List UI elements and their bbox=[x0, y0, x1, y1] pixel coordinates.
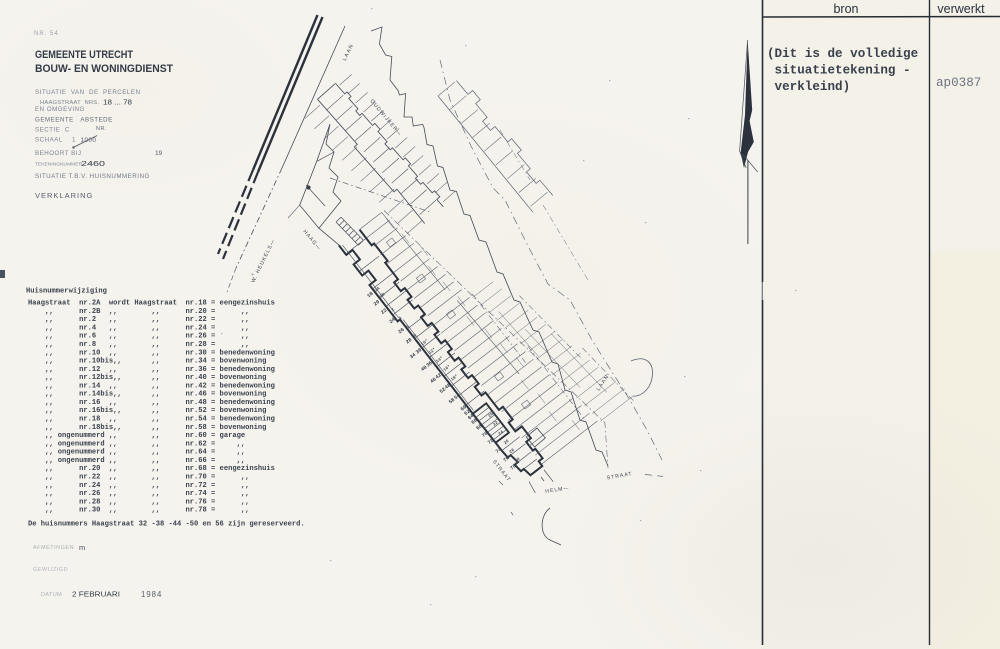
svg-text:1984: 1984 bbox=[141, 590, 162, 599]
svg-text:2 FEBRUARI: 2 FEBRUARI bbox=[72, 590, 120, 599]
svg-text:,, nr.2 ,, ,,: ,, nr.2 ,, ,, nr.22 = ,, bbox=[28, 316, 249, 324]
svg-text:,, ongenummerd ,, ,,: ,, ongenummerd ,, ,, nr.66 = ,, bbox=[28, 457, 245, 465]
svg-text:,, nr.30 ,, ,,: ,, nr.30 ,, ,, nr.78 = ,, bbox=[28, 507, 249, 515]
svg-text:GEMEENTE ABSTEDE: GEMEENTE ABSTEDE bbox=[35, 117, 113, 124]
svg-text:Haagstraat nr.2A wordt Haags: Haagstraat nr.2A wordt Haagstraat nr.18 … bbox=[28, 300, 275, 308]
svg-text:m: m bbox=[79, 543, 85, 552]
svg-text:,, nr.16 ,, ,,: ,, nr.16 ,, ,, nr.48 = benedenwoning bbox=[28, 399, 275, 407]
svg-text:verkleind): verkleind) bbox=[767, 80, 850, 94]
svg-text:SITUATIE T.B.V. HUISNUMMERING: SITUATIE T.B.V. HUISNUMMERING bbox=[35, 173, 150, 180]
svg-text:2460: 2460 bbox=[81, 159, 105, 168]
svg-text:,, nr.8 ,, ,,: ,, nr.8 ,, ,, nr.28 = ,, bbox=[28, 341, 249, 349]
svg-text:GEMEENTE UTRECHT: GEMEENTE UTRECHT bbox=[35, 49, 133, 61]
svg-text:,, ongenummerd ,, ,,: ,, ongenummerd ,, ,, nr.62 = ,, bbox=[28, 440, 245, 448]
svg-text:,, nr.2B ,, ,,: ,, nr.2B ,, ,, nr.20 = ,, bbox=[28, 308, 249, 316]
svg-text:BOUW- EN WONINGDIENST: BOUW- EN WONINGDIENST bbox=[35, 63, 173, 75]
svg-text:,, nr.10 ,, ,,: ,, nr.10 ,, ,, nr.30 = benedenwoning bbox=[28, 349, 275, 357]
svg-text:,, nr.12 ,, ,,: ,, nr.12 ,, ,, nr.36 = benedenwoning bbox=[28, 366, 275, 374]
svg-text:VERKLARING: VERKLARING bbox=[35, 191, 93, 200]
svg-text:DATUM: DATUM bbox=[41, 592, 62, 598]
svg-text:,, nr.12bis,, ,,: ,, nr.12bis,, ,, nr.40 = bovenwoning bbox=[28, 374, 266, 382]
svg-text:SECTIE C: SECTIE C bbox=[35, 127, 70, 134]
svg-text:,, nr.22 ,, ,,: ,, nr.22 ,, ,, nr.70 = ,, bbox=[28, 474, 249, 482]
svg-text:,, nr.10bis,, ,,: ,, nr.10bis,, ,, nr.34 = bovenwoning bbox=[28, 358, 266, 366]
svg-text:,, nr.6 ,, ,,: ,, nr.6 ,, ,, nr.26 = ,, bbox=[28, 333, 249, 341]
svg-text:AFMETINGEN: AFMETINGEN bbox=[33, 545, 74, 551]
svg-text:,, nr.26 ,, ,,: ,, nr.26 ,, ,, nr.74 = ,, bbox=[28, 490, 249, 498]
svg-text:NR. 54: NR. 54 bbox=[34, 31, 59, 37]
svg-text:,, nr.18 ,, ,,: ,, nr.18 ,, ,, nr.54 = benedenwoning bbox=[28, 416, 275, 424]
svg-text:SCHAAL: SCHAAL bbox=[35, 137, 63, 144]
svg-text:SITUATIE VAN DE PERCELEN: SITUATIE VAN DE PERCELEN bbox=[35, 89, 140, 96]
svg-text:TEKENINGNUMMER: TEKENINGNUMMER bbox=[35, 162, 82, 168]
svg-text:(Dit is de volledige: (Dit is de volledige bbox=[767, 47, 918, 61]
svg-text:,, nr.18bis,, ,,: ,, nr.18bis,, ,, nr.58 = bovenwoning bbox=[28, 424, 266, 432]
svg-text:EN OMGEVING: EN OMGEVING bbox=[35, 106, 85, 113]
svg-text:19: 19 bbox=[155, 150, 163, 157]
svg-text:,, nr.16bis,, ,,: ,, nr.16bis,, ,, nr.52 = bovenwoning bbox=[28, 407, 266, 415]
svg-text:,, nr.28 ,, ,,: ,, nr.28 ,, ,, nr.76 = ,, bbox=[28, 498, 249, 506]
svg-text:BEHOORT BIJ: BEHOORT BIJ bbox=[35, 150, 82, 157]
svg-text:GEWIJZIGD: GEWIJZIGD bbox=[33, 567, 68, 573]
svg-text:verwerkt: verwerkt bbox=[937, 2, 985, 16]
svg-text:bron: bron bbox=[833, 2, 858, 16]
svg-text:,, ongenummerd ,, ,,: ,, ongenummerd ,, ,, nr.60 = garage bbox=[28, 432, 245, 440]
svg-text:,, nr.14 ,, ,,: ,, nr.14 ,, ,, nr.42 = benedenwoning bbox=[28, 382, 275, 390]
svg-text:Huisnummerwijziging: Huisnummerwijziging bbox=[26, 288, 107, 296]
svg-text:,, nr.4 ,, ,,: ,, nr.4 ,, ,, nr.24 = ,, bbox=[28, 324, 249, 332]
svg-text:NR.: NR. bbox=[96, 126, 107, 132]
svg-text:18 ... 78: 18 ... 78 bbox=[103, 98, 132, 107]
svg-text:1: 1 bbox=[72, 137, 76, 144]
svg-text:,, nr.14bis,, ,,: ,, nr.14bis,, ,, nr.46 = bovenwoning bbox=[28, 391, 266, 399]
svg-text:,, ongenummerd ,, ,,: ,, ongenummerd ,, ,, nr.64 = ,, bbox=[28, 449, 245, 457]
svg-text:De huisnummers Haagstraat 32 -: De huisnummers Haagstraat 32 -38 -44 -50… bbox=[28, 521, 305, 529]
svg-text:,, nr.20 ,, ,,: ,, nr.20 ,, ,, nr.68 = eengezinshuis bbox=[28, 465, 275, 473]
svg-text:situatietekening -: situatietekening - bbox=[767, 64, 911, 78]
svg-text:,, nr.24 ,, ,,: ,, nr.24 ,, ,, nr.72 = ,, bbox=[28, 482, 249, 490]
svg-text:ap0387: ap0387 bbox=[936, 76, 981, 90]
